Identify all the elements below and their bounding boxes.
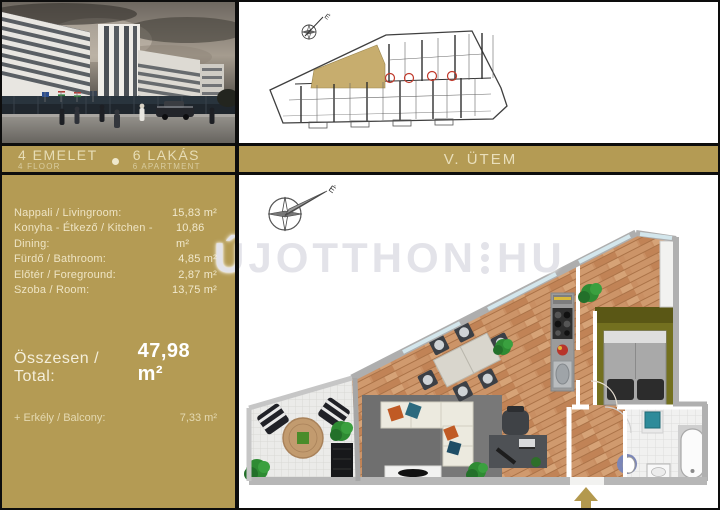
floorplan: É [239,175,720,510]
room-row: Fürdő / Bathroom:4,85 m² [14,252,217,267]
room-label: Előtér / Foreground: [14,268,116,283]
total-label: Összesen / Total: [14,350,138,386]
room-label: Konyha - Étkező / Kitchen - Dining: [14,221,176,252]
separator-dot-icon [112,158,119,165]
building-photo [2,2,235,143]
total-row: Összesen / Total: 47,98 m² [14,340,217,386]
phase-band: V. ÜTEM [239,146,720,172]
room-row: Szoba / Room:13,75 m² [14,283,217,298]
divider [239,172,720,175]
siteplan-drawing: É [239,2,720,143]
balcony-row: + Erkély / Balcony: 7,33 m² [14,412,217,424]
room-area: 13,75 m² [172,283,217,298]
area-sidebar: Nappali / Livingroom:15,83 m² Konyha - É… [2,175,235,510]
highlighted-unit [311,45,385,88]
apartment-count-hu: 6 LAKÁS [133,148,201,162]
room-label: Fürdő / Bathroom: [14,252,106,267]
room-area: 4,85 m² [178,252,217,267]
siteplan-north-label: É [323,11,332,21]
building-photo-art [2,2,235,143]
floorplan-drawing: É [239,175,720,510]
fruit-bowl [557,345,568,356]
kitchen [551,293,574,391]
floor-count-en: 4 FLOOR [18,163,98,171]
washing-machine [645,412,660,428]
range-hood [554,297,571,300]
table-plant [297,432,309,444]
balcony-label: + Erkély / Balcony: [14,412,105,424]
room-label: Nappali / Livingroom: [14,206,122,221]
listing-sheet: É 4 EMELET 4 FLOOR 6 LAKÁS 6 APARTMENT V… [0,0,720,510]
siteplan: É [239,2,720,143]
floor-apartment-band: 4 EMELET 4 FLOOR 6 LAKÁS 6 APARTMENT [2,146,235,172]
stove [553,308,573,339]
kitchen-sink [553,361,572,388]
divider [239,143,720,146]
desk-plant [531,457,541,467]
total-value: 47,98 m² [138,340,217,386]
compass-icon: É [268,183,338,231]
room-row: Előtér / Foreground:2,87 m² [14,268,217,283]
room-area: 15,83 m² [172,206,217,221]
apartment-count-en: 6 APARTMENT [133,163,201,171]
room-row: Konyha - Étkező / Kitchen - Dining:10,86… [14,221,217,252]
divider [2,143,235,146]
room-label: Szoba / Room: [14,283,89,298]
entry-doorway [570,477,604,485]
room-row: Nappali / Livingroom:15,83 m² [14,206,217,221]
siteplan-compass-icon: É [302,11,332,39]
room-area: 10,86 m² [176,221,217,252]
phase-label: V. ÜTEM [444,151,517,168]
office-chair [502,410,529,435]
balcony-area: 7,33 m² [180,412,217,424]
vertical-divider [235,2,239,510]
floor-count-hu: 4 EMELET [18,148,98,162]
divider [2,172,235,175]
room-area: 2,87 m² [178,268,217,283]
compass-north-label: É [327,183,338,195]
entrance-arrow-icon [574,487,598,510]
